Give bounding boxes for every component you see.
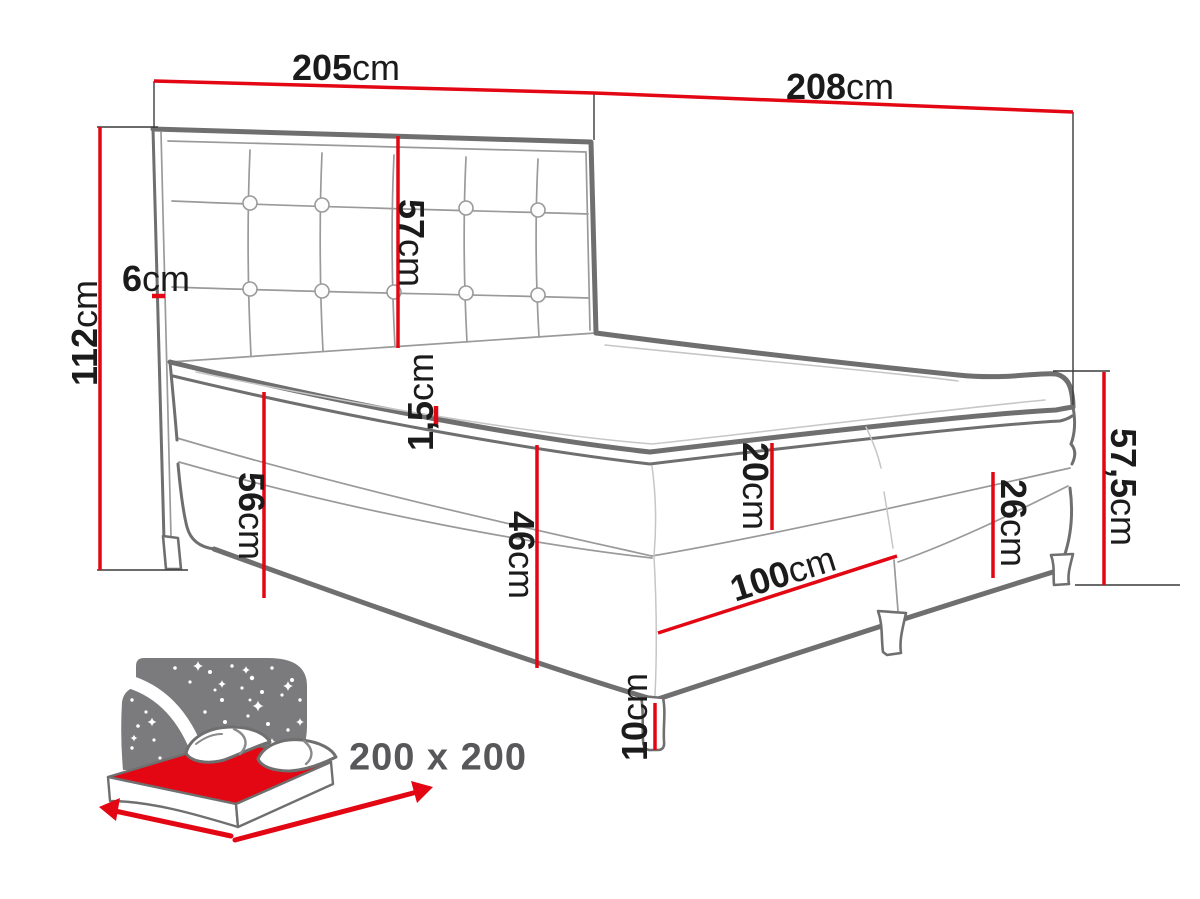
headboard-leg <box>163 536 181 569</box>
dimension-value: 6 <box>122 258 142 299</box>
dimension-value: 56 <box>231 472 272 512</box>
dimension-unit: cm <box>614 673 655 721</box>
dimension-value: 46 <box>501 511 542 551</box>
dimension-label-topper-thickness: 1,5cm <box>403 353 439 451</box>
dimension-unit: cm <box>1103 498 1144 546</box>
dimension-label-headboard-panel-height: 57cm <box>393 199 429 287</box>
dimension-label-mattress-height: 20cm <box>737 442 773 530</box>
middle-leg <box>878 611 906 655</box>
dimension-label-headboard-frame-thickness: 6cm <box>122 261 190 297</box>
dimension-label-leg-height: 10cm <box>617 673 653 761</box>
dimension-value: 57,5 <box>1103 428 1144 498</box>
dimension-label-mattress-and-base-height: 46cm <box>503 511 539 599</box>
dimension-label-base-box-height: 26cm <box>995 479 1031 567</box>
dimension-unit: cm <box>64 280 105 328</box>
dimension-label-total-length: 208cm <box>786 69 894 105</box>
dimension-unit: cm <box>142 258 190 299</box>
bed-dimensions-diagram: 205cm 208cm 112cm 6cm 57cm 1,5cm 56cm 46… <box>0 0 1200 899</box>
dimension-unit: cm <box>735 482 776 530</box>
dimension-label-foot-end-height: 57,5cm <box>1105 428 1141 546</box>
dimension-value: 1,5 <box>400 401 441 451</box>
dimension-value: 57 <box>391 199 432 239</box>
bed-line-drawing <box>0 0 1200 899</box>
size-badge: 200 x 200 <box>349 737 527 780</box>
mattress-base-fill <box>170 333 1073 700</box>
dimension-unit: cm <box>400 353 441 401</box>
dimension-label-headboard-width: 205cm <box>292 50 400 86</box>
dimension-value: 10 <box>614 721 655 761</box>
dimension-value: 20 <box>735 442 776 482</box>
bed-body <box>153 128 1073 700</box>
dimension-unit: cm <box>846 66 894 107</box>
dimension-value: 26 <box>993 479 1034 519</box>
dimension-value: 208 <box>786 66 846 107</box>
dimension-unit: cm <box>352 47 400 88</box>
right-leg <box>1051 554 1073 585</box>
dimension-unit: cm <box>391 239 432 287</box>
dimension-label-side-height: 56cm <box>233 472 269 560</box>
dimension-unit: cm <box>993 519 1034 567</box>
dimension-label-headboard-height: 112cm <box>67 280 103 386</box>
dimension-value: 112 <box>64 328 105 386</box>
dimension-unit: cm <box>231 512 272 560</box>
dimension-value: 205 <box>292 47 352 88</box>
dimension-unit: cm <box>501 551 542 599</box>
